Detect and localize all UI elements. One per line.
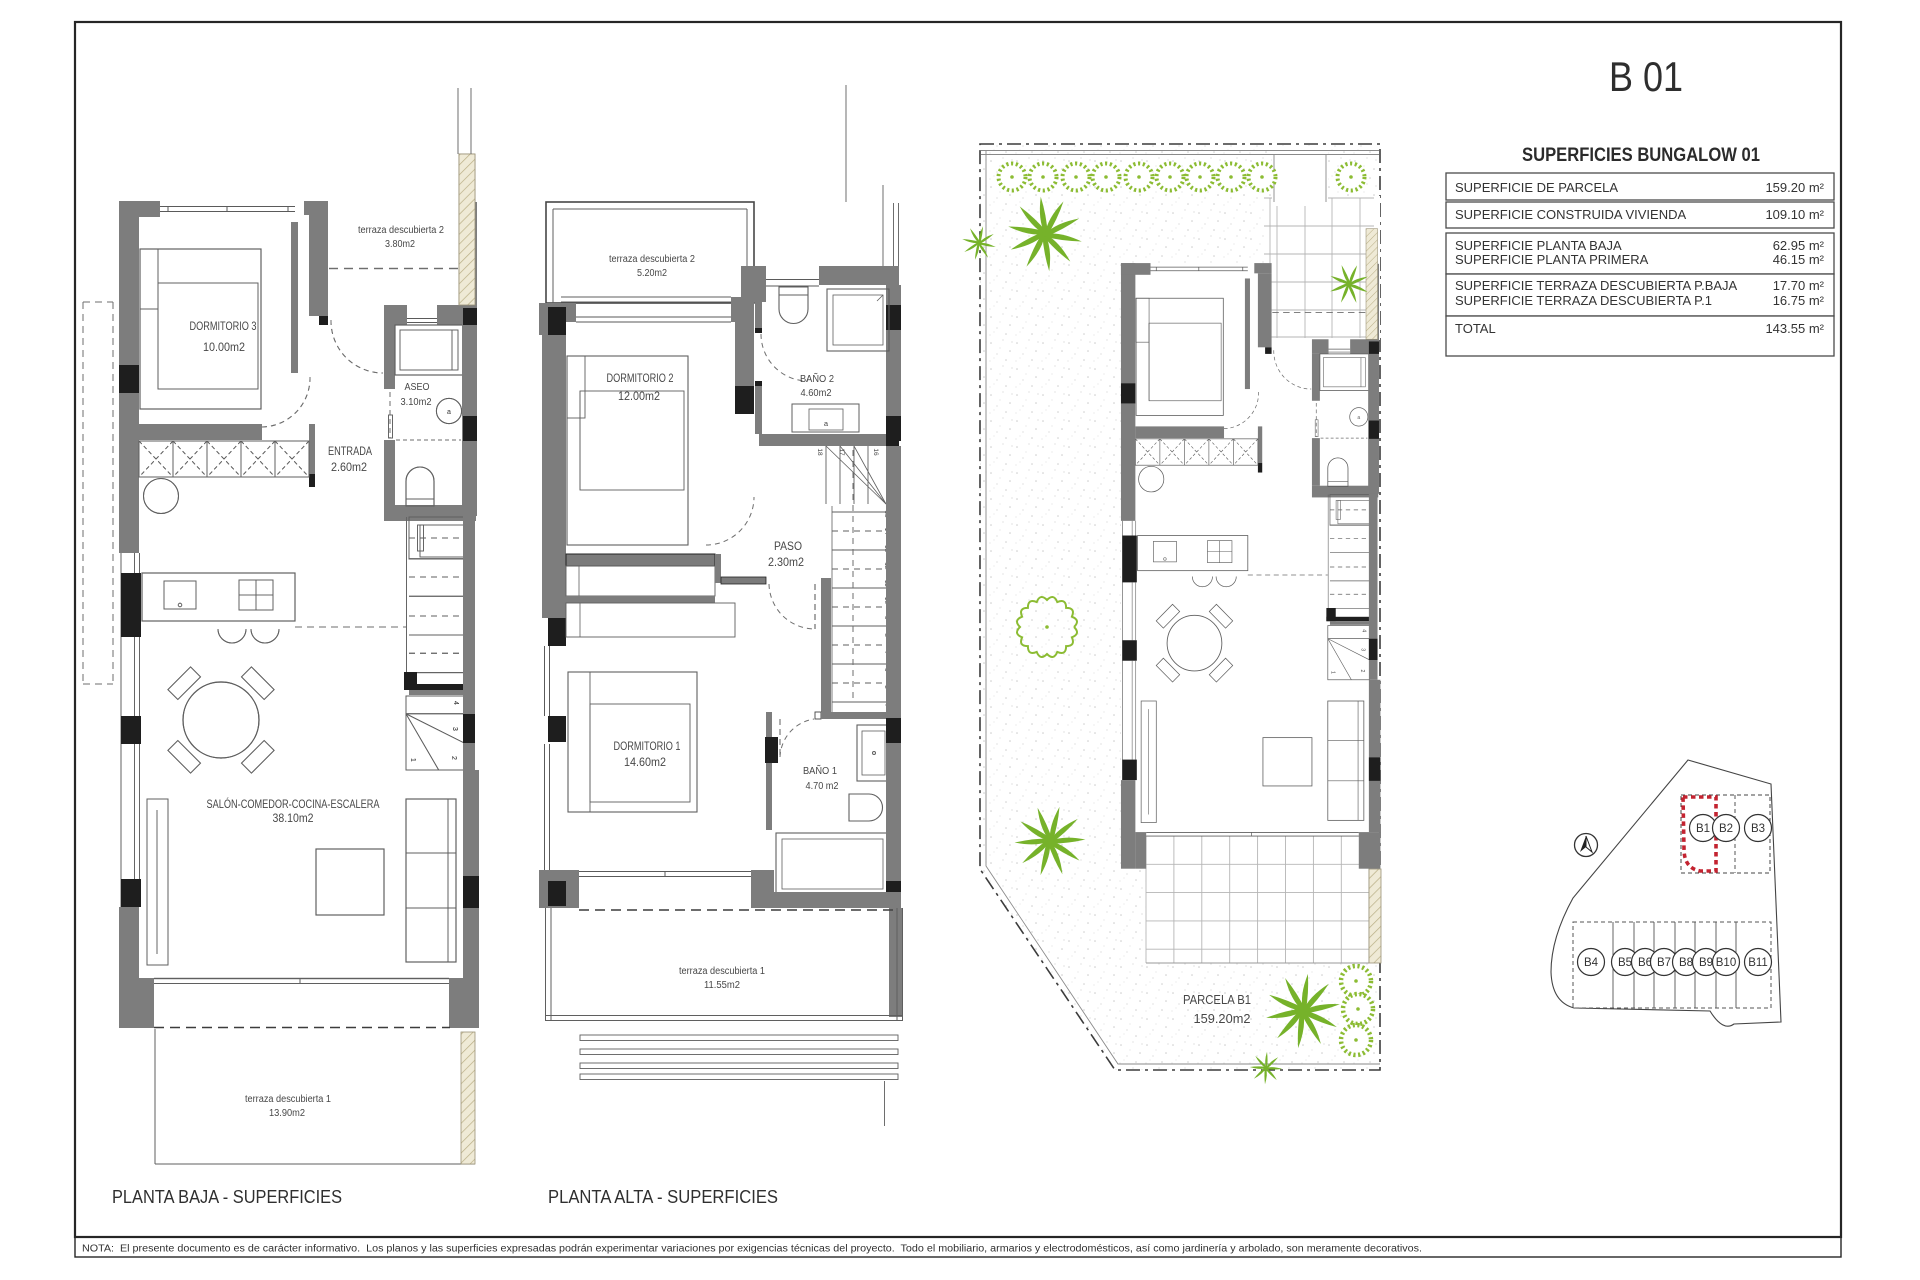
svg-text:B2: B2 xyxy=(1719,823,1733,835)
svg-text:BAÑO 1: BAÑO 1 xyxy=(803,764,837,777)
svg-text:SUPERFICIE PLANTA PRIMERA: SUPERFICIE PLANTA PRIMERA xyxy=(1455,252,1649,267)
svg-text:B4: B4 xyxy=(1584,957,1599,969)
svg-text:11.55m2: 11.55m2 xyxy=(704,980,740,991)
svg-text:PLANTA BAJA - SUPERFICIES: PLANTA BAJA - SUPERFICIES xyxy=(112,1186,342,1207)
svg-text:12.00m2: 12.00m2 xyxy=(618,391,660,403)
svg-text:B11: B11 xyxy=(1748,957,1768,969)
svg-text:B3: B3 xyxy=(1751,823,1765,835)
svg-text:DORMITORIO 2: DORMITORIO 2 xyxy=(607,373,674,385)
svg-text:B10: B10 xyxy=(1716,957,1736,969)
svg-text:terraza descubierta 1: terraza descubierta 1 xyxy=(245,1094,331,1105)
svg-text:62.95 m²: 62.95 m² xyxy=(1773,238,1825,253)
svg-text:ASEO: ASEO xyxy=(405,381,430,393)
svg-text:PARCELA B1: PARCELA B1 xyxy=(1183,993,1251,1007)
svg-text:3.80m2: 3.80m2 xyxy=(385,239,415,250)
svg-text:14.60m2: 14.60m2 xyxy=(624,757,666,769)
svg-text:17.70 m²: 17.70 m² xyxy=(1773,278,1825,293)
svg-text:SUPERFICIE DE PARCELA: SUPERFICIE DE PARCELA xyxy=(1455,180,1618,195)
svg-text:3.10m2: 3.10m2 xyxy=(401,396,432,408)
svg-text:SUPERFICIES BUNGALOW 01: SUPERFICIES BUNGALOW 01 xyxy=(1522,144,1760,166)
svg-text:10.00m2: 10.00m2 xyxy=(203,342,245,354)
svg-text:5.20m2: 5.20m2 xyxy=(637,268,667,279)
svg-text:4.70 m2: 4.70 m2 xyxy=(806,780,839,792)
svg-text:SUPERFICIE TERRAZA DESCUBIERTA: SUPERFICIE TERRAZA DESCUBIERTA P.BAJA xyxy=(1455,278,1738,293)
svg-text:B 01: B 01 xyxy=(1609,53,1683,100)
svg-text:B6: B6 xyxy=(1638,957,1652,969)
svg-text:4.60m2: 4.60m2 xyxy=(801,387,832,399)
svg-text:16.75 m²: 16.75 m² xyxy=(1773,293,1825,308)
svg-text:PLANTA ALTA - SUPERFICIES: PLANTA ALTA - SUPERFICIES xyxy=(548,1186,778,1207)
svg-text:terraza descubierta 2: terraza descubierta 2 xyxy=(609,254,695,265)
svg-text:SALÓN-COMEDOR-COCINA-ESCALERA: SALÓN-COMEDOR-COCINA-ESCALERA xyxy=(207,798,380,811)
svg-text:13.90m2: 13.90m2 xyxy=(269,1108,305,1119)
svg-text:BAÑO 2: BAÑO 2 xyxy=(800,372,834,385)
svg-text:B7: B7 xyxy=(1657,957,1671,969)
svg-text:B8: B8 xyxy=(1679,957,1693,969)
svg-text:SUPERFICIE TERRAZA DESCUBIERTA: SUPERFICIE TERRAZA DESCUBIERTA P.1 xyxy=(1455,293,1712,308)
svg-text:2.30m2: 2.30m2 xyxy=(768,557,804,569)
svg-text:18: 18 xyxy=(816,448,823,456)
svg-text:SUPERFICIE PLANTA BAJA: SUPERFICIE PLANTA BAJA xyxy=(1455,238,1622,253)
svg-text:B5: B5 xyxy=(1618,957,1632,969)
svg-text:2.60m2: 2.60m2 xyxy=(331,462,367,474)
svg-text:DORMITORIO 1: DORMITORIO 1 xyxy=(614,741,681,753)
svg-text:B9: B9 xyxy=(1699,957,1713,969)
svg-text:17: 17 xyxy=(838,448,845,456)
svg-text:143.55 m²: 143.55 m² xyxy=(1765,321,1824,336)
svg-text:terraza descubierta 2: terraza descubierta 2 xyxy=(358,225,444,236)
svg-text:B1: B1 xyxy=(1696,823,1710,835)
svg-text:NOTA: El presente documento e: NOTA: El presente documento es de caráct… xyxy=(82,1244,1422,1255)
svg-text:159.20m2: 159.20m2 xyxy=(1194,1012,1251,1026)
svg-text:46.15 m²: 46.15 m² xyxy=(1773,252,1825,267)
svg-text:159.20 m²: 159.20 m² xyxy=(1765,180,1824,195)
svg-text:terraza descubierta 1: terraza descubierta 1 xyxy=(679,966,765,977)
svg-text:TOTAL: TOTAL xyxy=(1455,321,1496,336)
svg-text:DORMITORIO 3: DORMITORIO 3 xyxy=(190,321,257,333)
svg-text:38.10m2: 38.10m2 xyxy=(273,813,314,825)
svg-text:PASO: PASO xyxy=(774,541,802,553)
svg-text:SUPERFICIE CONSTRUIDA VIVIENDA: SUPERFICIE CONSTRUIDA VIVIENDA xyxy=(1455,207,1686,222)
svg-text:109.10 m²: 109.10 m² xyxy=(1765,207,1824,222)
svg-text:ENTRADA: ENTRADA xyxy=(328,446,372,458)
svg-text:16: 16 xyxy=(872,448,879,456)
